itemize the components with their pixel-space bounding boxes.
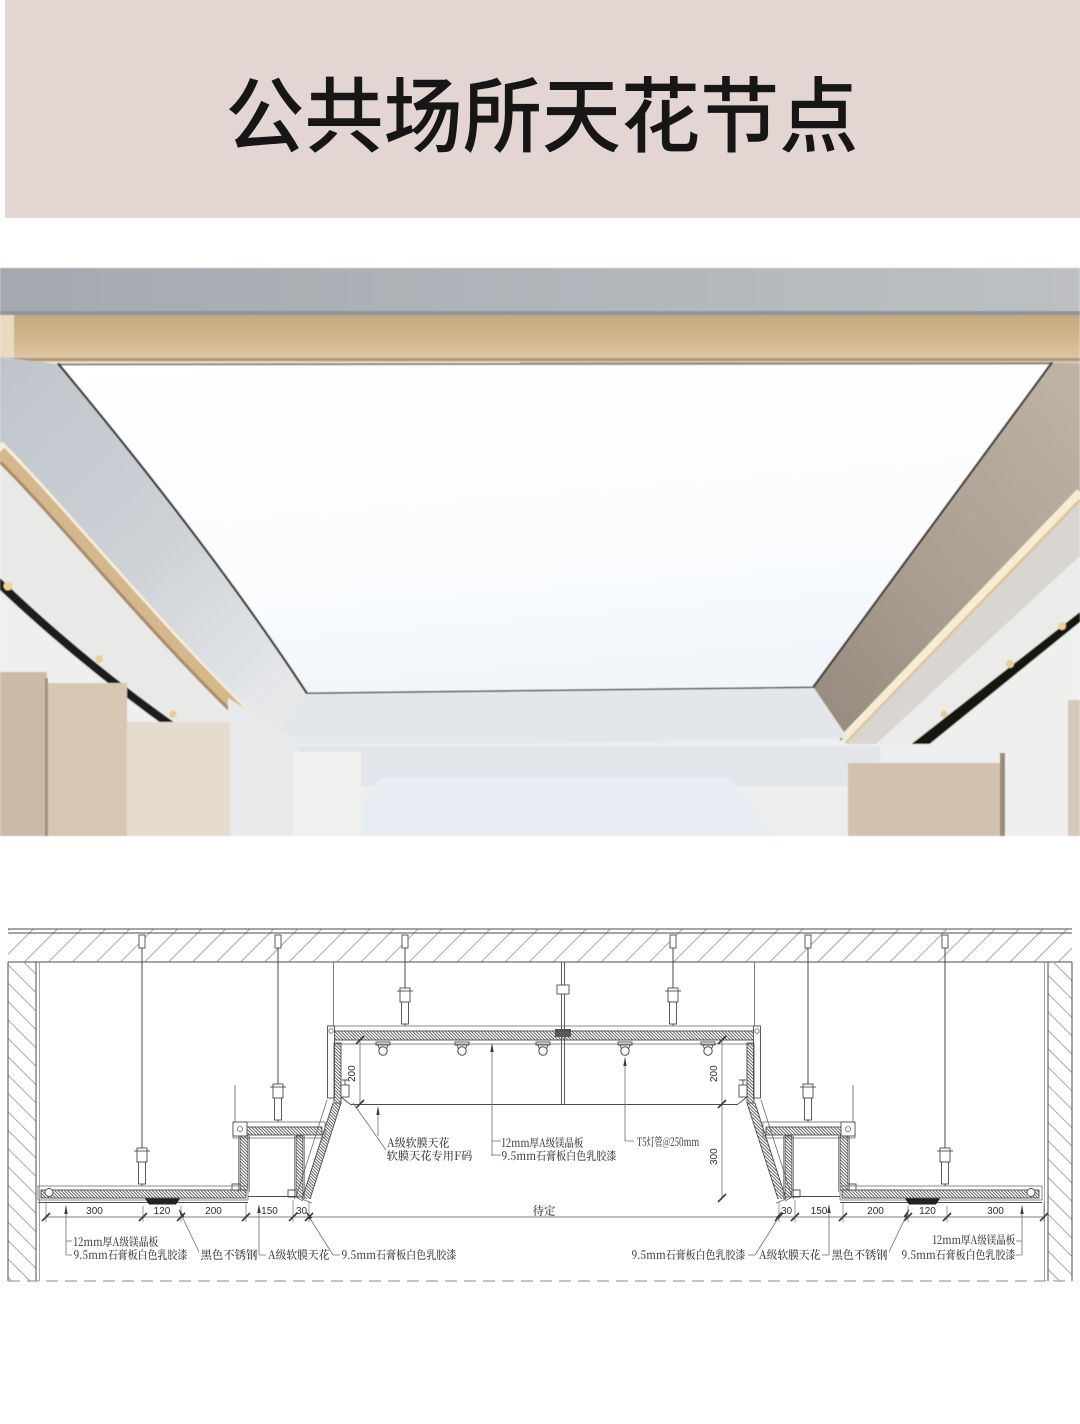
svg-text:300: 300 <box>987 1206 1004 1217</box>
svg-text:200: 200 <box>867 1206 884 1217</box>
svg-text:150: 150 <box>811 1206 828 1217</box>
svg-text:120: 120 <box>919 1206 936 1217</box>
svg-text:200: 200 <box>205 1206 222 1217</box>
svg-text:120: 120 <box>154 1206 171 1217</box>
svg-text:30: 30 <box>781 1206 793 1217</box>
svg-text:300: 300 <box>709 1148 720 1165</box>
svg-text:200: 200 <box>347 1065 358 1082</box>
svg-text:300: 300 <box>86 1206 103 1217</box>
svg-text:150: 150 <box>261 1206 278 1217</box>
svg-text:30: 30 <box>296 1206 308 1217</box>
svg-text:200: 200 <box>709 1065 720 1082</box>
